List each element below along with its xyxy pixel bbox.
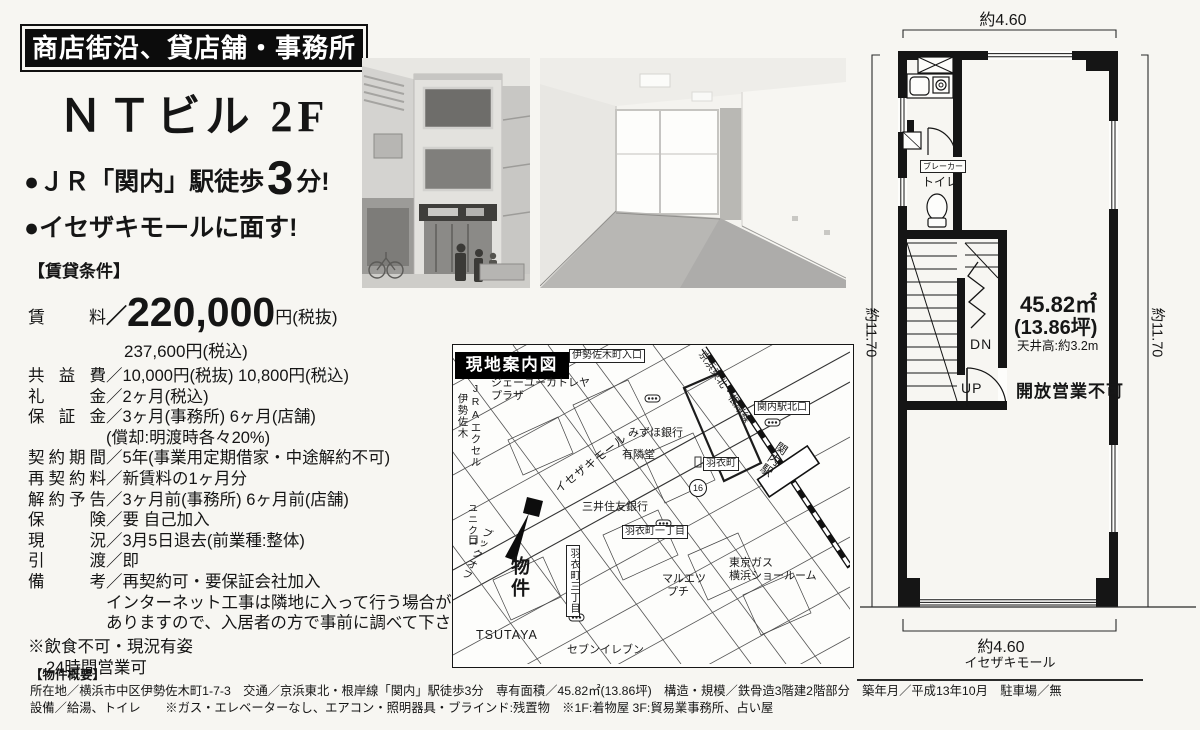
condition-row: 現 況／3月5日退去(前業種:整体) bbox=[28, 531, 453, 552]
map-label-isezaki-entrance: 伊勢佐木町入口 bbox=[569, 349, 645, 363]
map-label-smbc-bank: 三井住友銀行 bbox=[582, 501, 648, 514]
mall-facing-bullet: ●イセザキモールに面す! bbox=[24, 208, 297, 244]
condition-row: 備 考／再契約可・要保証会社加入 bbox=[28, 572, 453, 593]
rent-unit: 円(税抜) bbox=[275, 308, 337, 327]
plan-ceiling-height: 天井高:約3.2m bbox=[1017, 335, 1098, 354]
condition-row: インターネット工事は隣地に入って行う場合が bbox=[28, 593, 453, 614]
map-label-uniqlo: ユニクロ bbox=[464, 503, 477, 547]
condition-row: 礼 金／2ヶ月(税込) bbox=[28, 387, 453, 408]
plan-dim-bottom: 約4.60 bbox=[941, 633, 1061, 657]
property-type-banner-text: 商店街沿、貸店舗・事務所 bbox=[25, 29, 363, 67]
condition-row: 共 益 費／10,000円(税抜) 10,800円(税込) bbox=[28, 366, 453, 387]
interior-photo bbox=[540, 58, 846, 288]
property-overview-line1: 所在地／横浜市中区伊勢佐木町1-7-3 交通／京浜東北・根岸線「関内」駅徒歩3分… bbox=[30, 683, 1190, 700]
rent-label: 賃 料 bbox=[28, 303, 106, 328]
condition-row: 引 渡／即 bbox=[28, 551, 453, 572]
property-type-banner: 商店街沿、貸店舗・事務所 bbox=[20, 24, 368, 72]
plan-no-open-note: 開放営業不可 bbox=[1016, 377, 1124, 402]
rental-conditions-heading: 【賃貸条件】 bbox=[28, 257, 453, 282]
exterior-photo-image bbox=[362, 58, 530, 288]
map-label-tsutaya: TSUTAYA bbox=[476, 629, 538, 642]
map-label-tokyogas-1: 東京ガス bbox=[729, 557, 773, 570]
map-label-maruetsu-1: マルエツ bbox=[662, 573, 706, 586]
plan-stairs-up: UP bbox=[961, 380, 982, 396]
area-map: 現地案内図 伊勢佐木町入口 ジェーユーカトレヤ プラザ JRAエクセル 伊勢佐木… bbox=[452, 344, 854, 668]
rent-row: 賃 料／220,000円(税抜) bbox=[28, 289, 453, 336]
condition-row: (償却:明渡時各々20%) bbox=[28, 428, 453, 449]
walk-minutes-number: 3 bbox=[267, 151, 293, 204]
map-label-yurindo: 有隣堂 bbox=[622, 449, 655, 462]
map-label-hagoromo-1chome: 羽衣町一丁目 bbox=[622, 525, 688, 539]
condition-row: 再契約料／新賃料の1ヶ月分 bbox=[28, 469, 453, 490]
map-label-hagoromo-cho: 羽衣町 bbox=[703, 457, 739, 471]
rent-slash: ／ bbox=[106, 305, 127, 328]
condition-row: 保 証 金／3ヶ月(事務所) 6ヶ月(店舗) bbox=[28, 407, 453, 428]
rent-amount: 220,000 bbox=[127, 289, 275, 335]
condition-row: 契約期間／5年(事業用定期借家・中途解約不可) bbox=[28, 448, 453, 469]
plan-stairs-down: DN bbox=[970, 336, 992, 352]
map-label-hagoromo-3chome: 羽衣町三丁目 bbox=[566, 545, 580, 617]
rental-conditions-section: 【賃貸条件】 賃 料／220,000円(税抜) 237,600円(税込) 共 益… bbox=[28, 257, 453, 679]
map-label-kannai-north-exit: 関内駅北口 bbox=[754, 401, 810, 415]
map-label-tokyogas-2: 横浜ショールーム bbox=[729, 570, 817, 583]
route-16-shield: 16 bbox=[689, 479, 707, 497]
station-walk-text: ●ＪＲ「関内」駅徒歩 bbox=[24, 168, 264, 196]
floor-plan: 約4.60 約11.70 約11.70 45.82㎡ (13.86坪) 天井高:… bbox=[858, 0, 1200, 672]
map-label-plaza-2: プラザ bbox=[491, 390, 524, 403]
map-label-isezaki-col: 伊勢佐木 bbox=[456, 393, 469, 439]
plan-dim-top: 約4.60 bbox=[943, 6, 1063, 30]
map-label-property: 物件 bbox=[505, 556, 532, 600]
map-label-jra-excel: JRAエクセル bbox=[469, 383, 482, 468]
map-label-maruetsu-2: プチ bbox=[667, 586, 689, 599]
map-label-seven-eleven: セブンイレブン bbox=[567, 644, 644, 657]
station-walk-bullet: ●ＪＲ「関内」駅徒歩3分! bbox=[24, 150, 330, 205]
condition-row: 保 険／要 自己加入 bbox=[28, 510, 453, 531]
real-estate-flyer: 商店街沿、貸店舗・事務所 ＮＴビル 2F ●ＪＲ「関内」駅徒歩3分! ●イセザキ… bbox=[0, 0, 1200, 730]
note-no-restaurant: ※飲食不可・現況有姿 bbox=[28, 637, 453, 658]
property-overview-line2: 設備／給湯、トイレ ※ガス・エレベーターなし、エアコン・照明器具・ブラインド:残… bbox=[30, 700, 1190, 717]
condition-row: 解約予告／3ヶ月前(事務所) 6ヶ月前(店舗) bbox=[28, 490, 453, 511]
condition-row: ありますので、入居者の方で事前に調べて下さい。 bbox=[28, 613, 453, 634]
map-title: 現地案内図 bbox=[455, 352, 569, 379]
building-title: ＮＴビル 2F bbox=[28, 80, 360, 144]
rent-tax-included: 237,600円(税込) bbox=[124, 337, 453, 362]
plan-dim-right: 約11.70 bbox=[1148, 285, 1169, 381]
plan-dim-left: 約11.70 bbox=[862, 285, 883, 381]
map-label-mizuho-bank: みずほ銀行 bbox=[628, 427, 683, 440]
walk-minutes-unit: 分! bbox=[296, 168, 329, 196]
property-overview-heading: 【物件概要】 bbox=[30, 668, 1190, 683]
interior-photo-image bbox=[540, 58, 846, 288]
plan-toilet-label: トイレ bbox=[922, 173, 958, 190]
exterior-photo bbox=[362, 58, 530, 288]
map-label-plaza-1: ジェーユーカトレヤ bbox=[491, 377, 590, 390]
property-overview-section: 【物件概要】 所在地／横浜市中区伊勢佐木町1-7-3 交通／京浜東北・根岸線「関… bbox=[30, 668, 1190, 716]
plan-breaker-label: ブレーカー bbox=[920, 160, 966, 173]
